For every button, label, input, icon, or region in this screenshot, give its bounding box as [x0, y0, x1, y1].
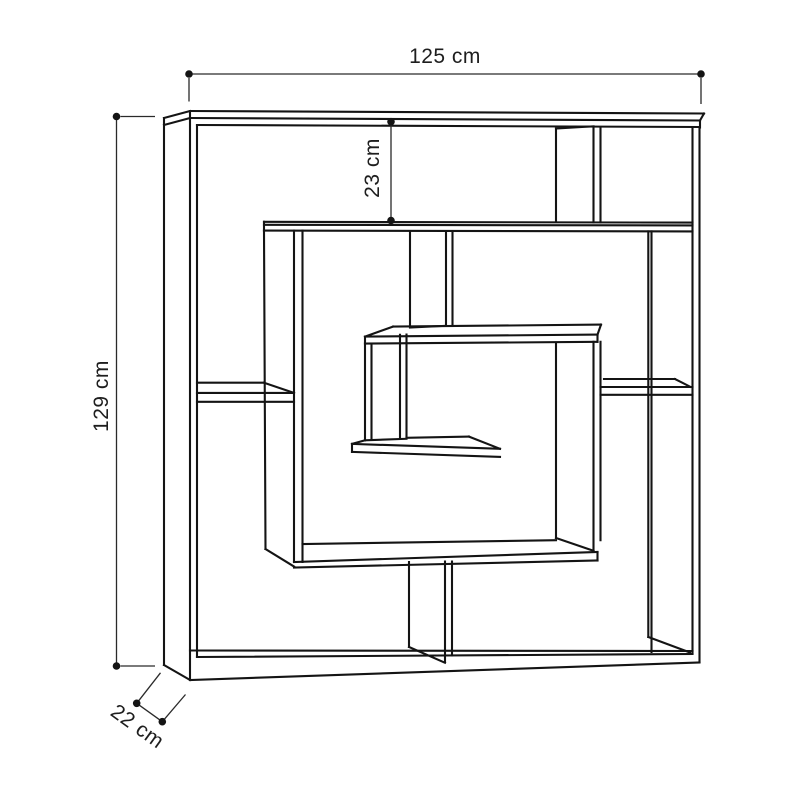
width-dimension-line — [189, 74, 701, 104]
bookshelf-line-drawing — [0, 0, 800, 800]
depth-dimension-line — [137, 673, 186, 722]
height-dimension-line — [117, 117, 156, 667]
width-dimension-label: 125 cm — [409, 45, 481, 69]
dimension-diagram: 125 cm 129 cm 23 cm 22 cm — [0, 0, 800, 800]
top-section-dimension-label: 23 cm — [361, 138, 385, 198]
height-dimension-label: 129 cm — [90, 360, 114, 432]
bookshelf-structure — [164, 111, 704, 680]
